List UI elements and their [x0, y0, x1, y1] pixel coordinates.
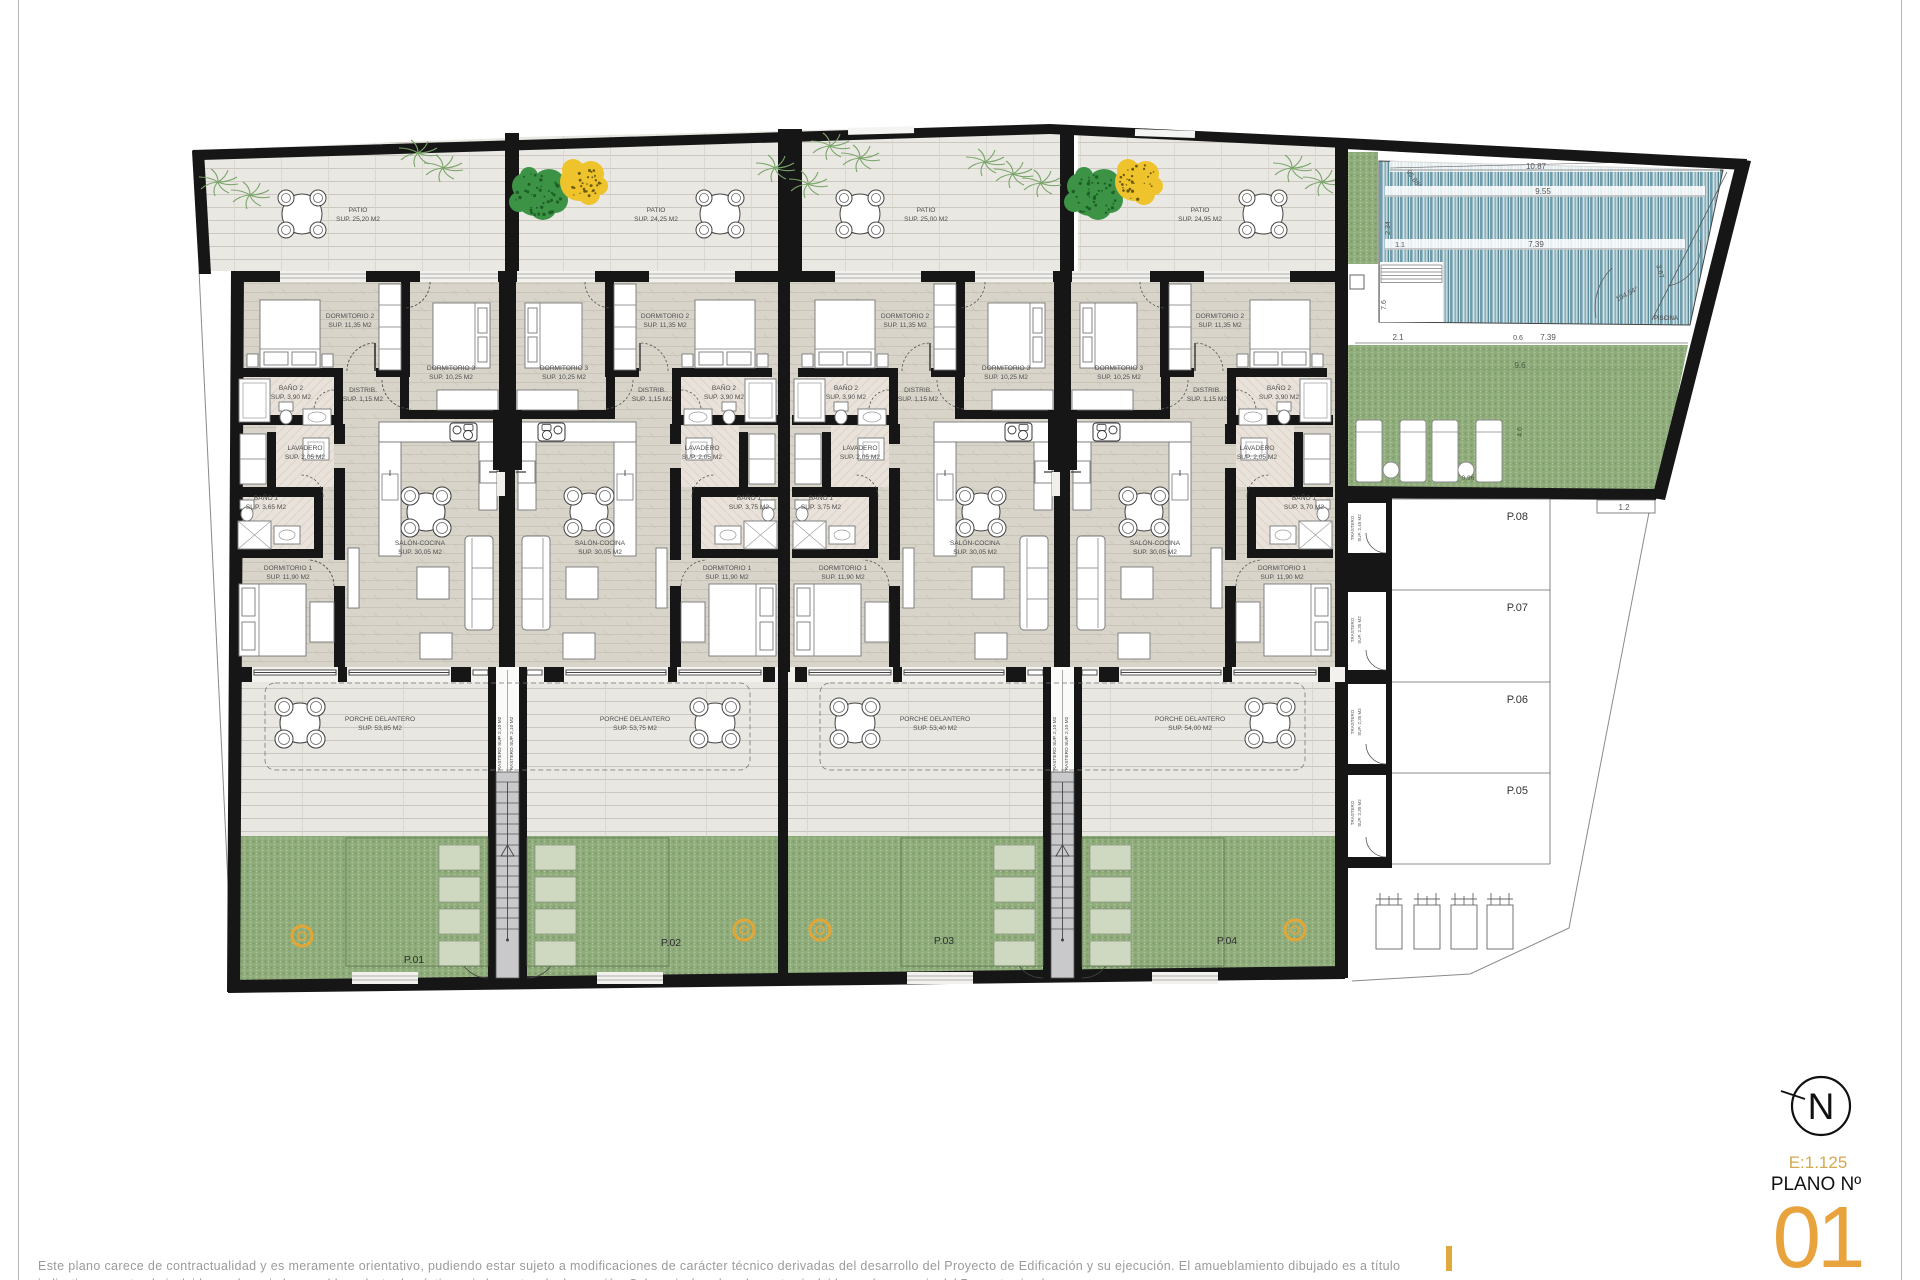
svg-text:PATIO: PATIO — [349, 207, 368, 214]
svg-text:SUP. 24,95 M2: SUP. 24,95 M2 — [1178, 216, 1222, 223]
svg-text:0.6: 0.6 — [1513, 335, 1523, 342]
svg-text:P.08: P.08 — [1507, 511, 1528, 523]
svg-text:DISTRIB.: DISTRIB. — [1193, 387, 1221, 394]
svg-text:BAÑO 1: BAÑO 1 — [254, 493, 279, 502]
svg-text:SALÓN-COCINA: SALÓN-COCINA — [950, 538, 1001, 547]
svg-text:DISTRIB.: DISTRIB. — [638, 387, 666, 394]
svg-text:SUP. 30,05 M2: SUP. 30,05 M2 — [1133, 549, 1177, 556]
svg-text:SALÓN-COCINA: SALÓN-COCINA — [395, 538, 446, 547]
svg-text:P.01: P.01 — [404, 954, 424, 966]
svg-text:SUP. 2,05 M2: SUP. 2,05 M2 — [840, 454, 881, 461]
svg-text:SUP. 25,20 M2: SUP. 25,20 M2 — [336, 216, 380, 223]
svg-text:SUP. 11,35 M2: SUP. 11,35 M2 — [1198, 322, 1242, 329]
svg-text:BAÑO 1: BAÑO 1 — [737, 493, 762, 502]
svg-text:LAVADERO: LAVADERO — [1240, 445, 1275, 452]
svg-text:BAÑO 1: BAÑO 1 — [809, 493, 834, 502]
svg-text:TRASTERO: TRASTERO — [1350, 709, 1355, 734]
svg-text:10.87: 10.87 — [1526, 162, 1547, 171]
svg-text:TRASTERO: TRASTERO — [1350, 617, 1355, 642]
svg-text:7.39: 7.39 — [1540, 333, 1556, 342]
svg-text:0.96: 0.96 — [1462, 475, 1475, 482]
svg-text:Este plano carece de contractu: Este plano carece de contractualidad y e… — [38, 1259, 1400, 1273]
svg-text:BAÑO 2: BAÑO 2 — [834, 383, 859, 392]
svg-text:DORMITORIO 2: DORMITORIO 2 — [1196, 313, 1245, 320]
svg-text:TRASTERO: TRASTERO — [1350, 515, 1355, 540]
svg-text:SUP. 2,05 M2: SUP. 2,05 M2 — [682, 454, 723, 461]
svg-text:SUP. 1,15 M2: SUP. 1,15 M2 — [1187, 396, 1228, 403]
svg-text:PORCHE DELANTERO: PORCHE DELANTERO — [345, 716, 415, 723]
svg-text:SALÓN-COCINA: SALÓN-COCINA — [575, 538, 626, 547]
svg-text:PISCINA: PISCINA — [1654, 316, 1678, 322]
svg-text:P.06: P.06 — [1507, 694, 1528, 706]
svg-text:SALÓN-COCINA: SALÓN-COCINA — [1130, 538, 1181, 547]
svg-text:SUP. 11,90 M2: SUP. 11,90 M2 — [1260, 574, 1304, 581]
svg-text:BAÑO 2: BAÑO 2 — [712, 383, 737, 392]
svg-text:PATIO: PATIO — [647, 207, 666, 214]
svg-text:LAVADERO: LAVADERO — [843, 445, 878, 452]
svg-text:01: 01 — [1773, 1189, 1862, 1280]
svg-text:SUP. 3,90 M2: SUP. 3,90 M2 — [1259, 394, 1300, 401]
svg-text:DORMITORIO 1: DORMITORIO 1 — [1258, 565, 1307, 572]
svg-text:SUP. 3,75 M2: SUP. 3,75 M2 — [801, 504, 842, 511]
svg-text:N: N — [1808, 1086, 1835, 1127]
svg-text:SUP. 2,35 M2: SUP. 2,35 M2 — [1357, 616, 1362, 644]
svg-text:TRASTERO SUP. 2,10 M2: TRASTERO SUP. 2,10 M2 — [497, 716, 503, 773]
svg-text:SUP. 10,25 M2: SUP. 10,25 M2 — [1097, 374, 1141, 381]
svg-text:2.34: 2.34 — [1385, 221, 1392, 235]
svg-text:PORCHE DELANTERO: PORCHE DELANTERO — [600, 716, 670, 723]
svg-text:SUP. 11,90 M2: SUP. 11,90 M2 — [266, 574, 310, 581]
svg-text:DORMITORIO 3: DORMITORIO 3 — [982, 365, 1031, 372]
svg-text:SUP. 11,35 M2: SUP. 11,35 M2 — [328, 322, 372, 329]
svg-text:SUP. 3,70 M2: SUP. 3,70 M2 — [1284, 504, 1325, 511]
svg-text:DISTRIB.: DISTRIB. — [349, 387, 377, 394]
svg-text:TRASTERO: TRASTERO — [1350, 800, 1355, 825]
svg-text:LAVADERO: LAVADERO — [685, 445, 720, 452]
svg-text:DORMITORIO 1: DORMITORIO 1 — [703, 565, 752, 572]
svg-text:SUP. 3,90 M2: SUP. 3,90 M2 — [271, 394, 312, 401]
svg-text:SUP. 30,05 M2: SUP. 30,05 M2 — [578, 549, 622, 556]
svg-text:DORMITORIO 2: DORMITORIO 2 — [881, 313, 930, 320]
svg-text:PATIO: PATIO — [1191, 207, 1210, 214]
svg-text:SUP. 10,25 M2: SUP. 10,25 M2 — [984, 374, 1028, 381]
svg-text:SUP. 10,25 M2: SUP. 10,25 M2 — [542, 374, 586, 381]
svg-text:LAVADERO: LAVADERO — [288, 445, 323, 452]
svg-text:SUP. 53,85 M2: SUP. 53,85 M2 — [358, 725, 402, 732]
svg-text:DORMITORIO 1: DORMITORIO 1 — [819, 565, 868, 572]
svg-text:9.55: 9.55 — [1535, 187, 1551, 196]
svg-text:SUP. 24,25 M2: SUP. 24,25 M2 — [634, 216, 678, 223]
svg-text:DORMITORIO 3: DORMITORIO 3 — [540, 365, 589, 372]
svg-text:SUP. 3,75 M2: SUP. 3,75 M2 — [729, 504, 770, 511]
svg-text:SUP. 2,05 M2: SUP. 2,05 M2 — [1237, 454, 1278, 461]
svg-text:2.1: 2.1 — [1392, 333, 1404, 342]
svg-text:SUP. 2,35 M2: SUP. 2,35 M2 — [1357, 708, 1362, 736]
svg-text:P.02: P.02 — [661, 937, 681, 949]
svg-text:SUP. 2,05 M2: SUP. 2,05 M2 — [285, 454, 326, 461]
svg-text:PORCHE DELANTERO: PORCHE DELANTERO — [900, 716, 970, 723]
svg-text:1.1: 1.1 — [1395, 242, 1405, 249]
svg-text:TRASTERO SUP. 2,10 M2: TRASTERO SUP. 2,10 M2 — [509, 716, 515, 773]
svg-text:SUP. 11,35 M2: SUP. 11,35 M2 — [643, 322, 687, 329]
svg-text:SUP. 10,25 M2: SUP. 10,25 M2 — [429, 374, 473, 381]
svg-text:BAÑO 2: BAÑO 2 — [279, 383, 304, 392]
svg-text:7.6: 7.6 — [1381, 300, 1388, 310]
svg-text:1.2: 1.2 — [1618, 503, 1630, 512]
svg-text:BAÑO 2: BAÑO 2 — [1267, 383, 1292, 392]
svg-text:SUP. 25,00 M2: SUP. 25,00 M2 — [904, 216, 948, 223]
svg-text:SUP. 3,90 M2: SUP. 3,90 M2 — [704, 394, 745, 401]
svg-text:TRASTERO SUP. 2,10 M2: TRASTERO SUP. 2,10 M2 — [1064, 716, 1070, 773]
svg-text:SUP. 53,75 M2: SUP. 53,75 M2 — [613, 725, 657, 732]
svg-text:SUP. 2,45 M2: SUP. 2,45 M2 — [1357, 514, 1362, 542]
svg-text:SUP. 11,35 M2: SUP. 11,35 M2 — [883, 322, 927, 329]
svg-text:DORMITORIO 3: DORMITORIO 3 — [427, 365, 476, 372]
svg-text:SUP. 54,00 M2: SUP. 54,00 M2 — [1168, 725, 1212, 732]
svg-text:SUP. 1,15 M2: SUP. 1,15 M2 — [343, 396, 384, 403]
svg-text:PATIO: PATIO — [917, 207, 936, 214]
svg-text:P.07: P.07 — [1507, 602, 1528, 614]
svg-text:SUP. 3,90 M2: SUP. 3,90 M2 — [826, 394, 867, 401]
svg-text:P.05: P.05 — [1507, 785, 1528, 797]
svg-text:P.03: P.03 — [934, 935, 954, 947]
svg-text:DORMITORIO 2: DORMITORIO 2 — [326, 313, 375, 320]
svg-text:DORMITORIO 1: DORMITORIO 1 — [264, 565, 313, 572]
svg-text:PORCHE DELANTERO: PORCHE DELANTERO — [1155, 716, 1225, 723]
svg-text:SUP. 2,30 M2: SUP. 2,30 M2 — [1357, 799, 1362, 827]
svg-text:TRASTERO SUP. 2,10 M2: TRASTERO SUP. 2,10 M2 — [1052, 716, 1058, 773]
svg-text:SUP. 1,15 M2: SUP. 1,15 M2 — [632, 396, 673, 403]
svg-text:9.6: 9.6 — [1514, 361, 1526, 370]
svg-text:7.39: 7.39 — [1528, 240, 1544, 249]
svg-text:4.6: 4.6 — [1517, 427, 1524, 437]
svg-text:SUP. 30,05 M2: SUP. 30,05 M2 — [398, 549, 442, 556]
svg-text:P.04: P.04 — [1217, 935, 1237, 947]
svg-text:DORMITORIO 3: DORMITORIO 3 — [1095, 365, 1144, 372]
svg-text:E:1.125: E:1.125 — [1789, 1153, 1848, 1172]
svg-text:SUP. 3,65 M2: SUP. 3,65 M2 — [246, 504, 287, 511]
svg-text:SUP. 11,90 M2: SUP. 11,90 M2 — [821, 574, 865, 581]
svg-text:SUP. 1,15 M2: SUP. 1,15 M2 — [898, 396, 939, 403]
svg-text:BAÑO 1: BAÑO 1 — [1292, 493, 1317, 502]
svg-text:SUP. 11,90 M2: SUP. 11,90 M2 — [705, 574, 749, 581]
svg-text:SUP. 30,05 M2: SUP. 30,05 M2 — [953, 549, 997, 556]
svg-text:SUP. 53,40 M2: SUP. 53,40 M2 — [913, 725, 957, 732]
svg-text:DISTRIB.: DISTRIB. — [904, 387, 932, 394]
svg-text:DORMITORIO 2: DORMITORIO 2 — [641, 313, 690, 320]
